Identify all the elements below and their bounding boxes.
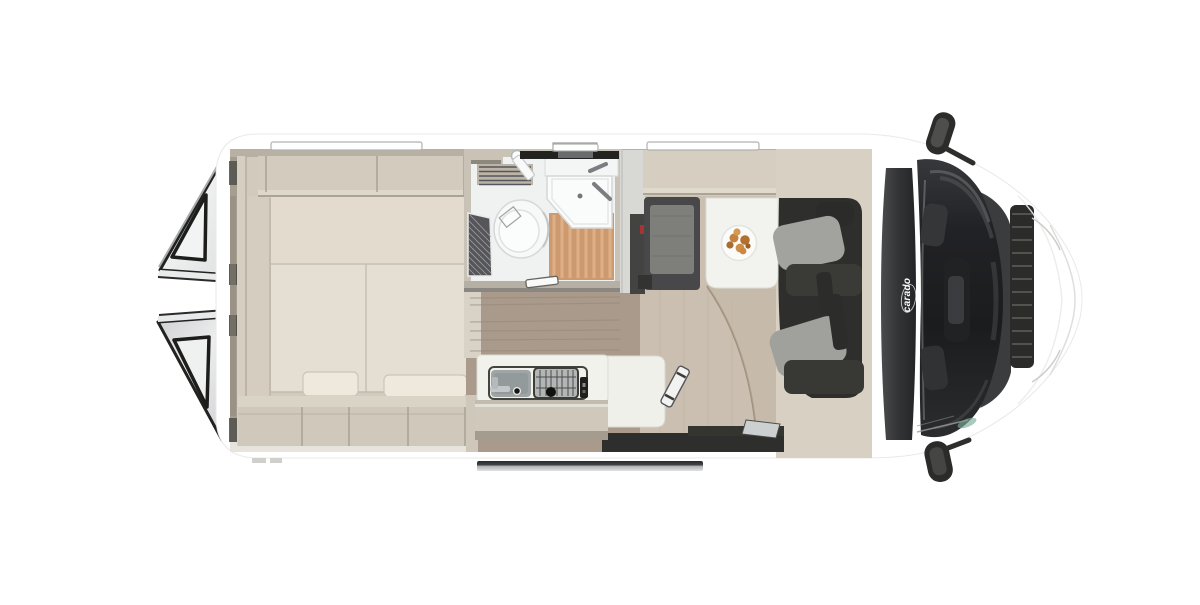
svg-text:carado: carado: [902, 278, 913, 313]
